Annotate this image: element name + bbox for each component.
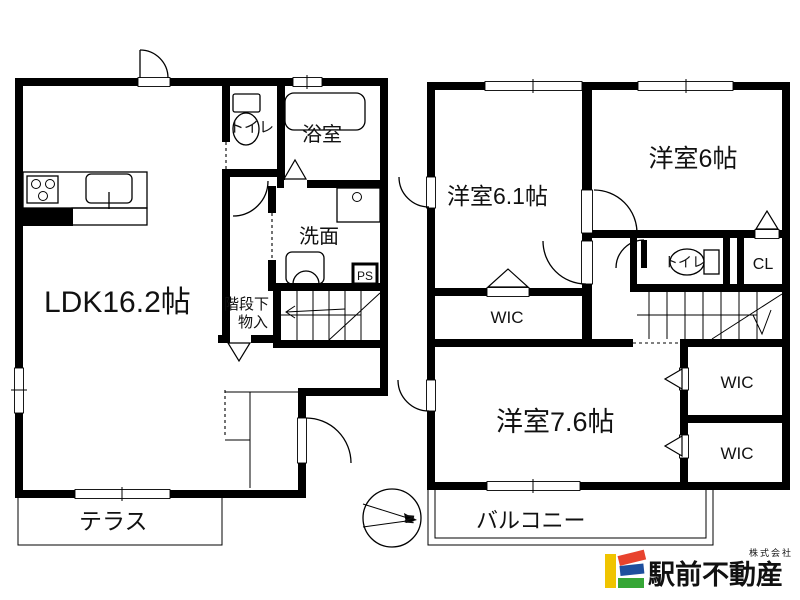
label-bath: 浴室: [302, 123, 342, 146]
brand-company-name: 駅前不動産: [648, 559, 783, 590]
second-floor: 洋室6.1帖 洋室6帖 トイレ CL WIC 洋室7.6帖 WIC WIC バル…: [398, 79, 790, 545]
label-terrace: テラス: [79, 508, 148, 534]
label-room-b: 洋室6帖: [649, 145, 738, 173]
front-door-arc: [306, 418, 351, 463]
label-room-a: 洋室6.1帖: [447, 183, 548, 209]
label-toilet-1f: トイレ: [229, 119, 274, 136]
compass: N: [363, 489, 421, 547]
label-wic-right-top: WIC: [720, 373, 753, 392]
label-stair-storage-2: 物入: [238, 314, 268, 331]
washing-machine-icon: [286, 252, 324, 284]
label-cl: CL: [753, 256, 774, 273]
entry-step-lines: [225, 392, 298, 488]
stairs-2f-icon: [633, 292, 782, 343]
hall-door-arc: [233, 181, 268, 216]
brand-logo: 株式会社 駅前不動産: [605, 547, 793, 590]
label-room-c: 洋室7.6帖: [496, 407, 615, 437]
label-stair-storage-1: 階段下: [224, 296, 269, 313]
floorplan-canvas: LDK16.2帖 トイレ 浴室 洗面 PS 階段下 物入 テラス: [0, 0, 800, 600]
label-ldk: LDK16.2帖: [44, 286, 191, 319]
label-ps: PS: [357, 269, 373, 283]
floorplan-drawing: LDK16.2帖 トイレ 浴室 洗面 PS 階段下 物入 テラス: [0, 0, 800, 600]
dashed-openings: [225, 142, 272, 437]
label-wic-right-bottom: WIC: [720, 444, 753, 463]
brand-company-prefix: 株式会社: [749, 547, 793, 558]
washbasin-icon: [337, 188, 380, 222]
stairs-icon: [281, 291, 380, 340]
entrance-door-icon: [140, 50, 168, 78]
label-wash: 洗面: [299, 225, 339, 248]
brand-logo-icon: [605, 550, 646, 588]
label-balcony: バルコニー: [476, 508, 586, 533]
label-wic-left: WIC: [490, 308, 523, 327]
stove-icon: [32, 180, 55, 201]
kitchen-counter-icon: [15, 172, 147, 226]
first-floor: LDK16.2帖 トイレ 浴室 洗面 PS 階段下 物入 テラス: [11, 50, 388, 545]
compass-north-label: N: [402, 514, 418, 525]
sink-icon: [86, 174, 132, 209]
label-toilet-2f: トイレ: [664, 254, 706, 270]
